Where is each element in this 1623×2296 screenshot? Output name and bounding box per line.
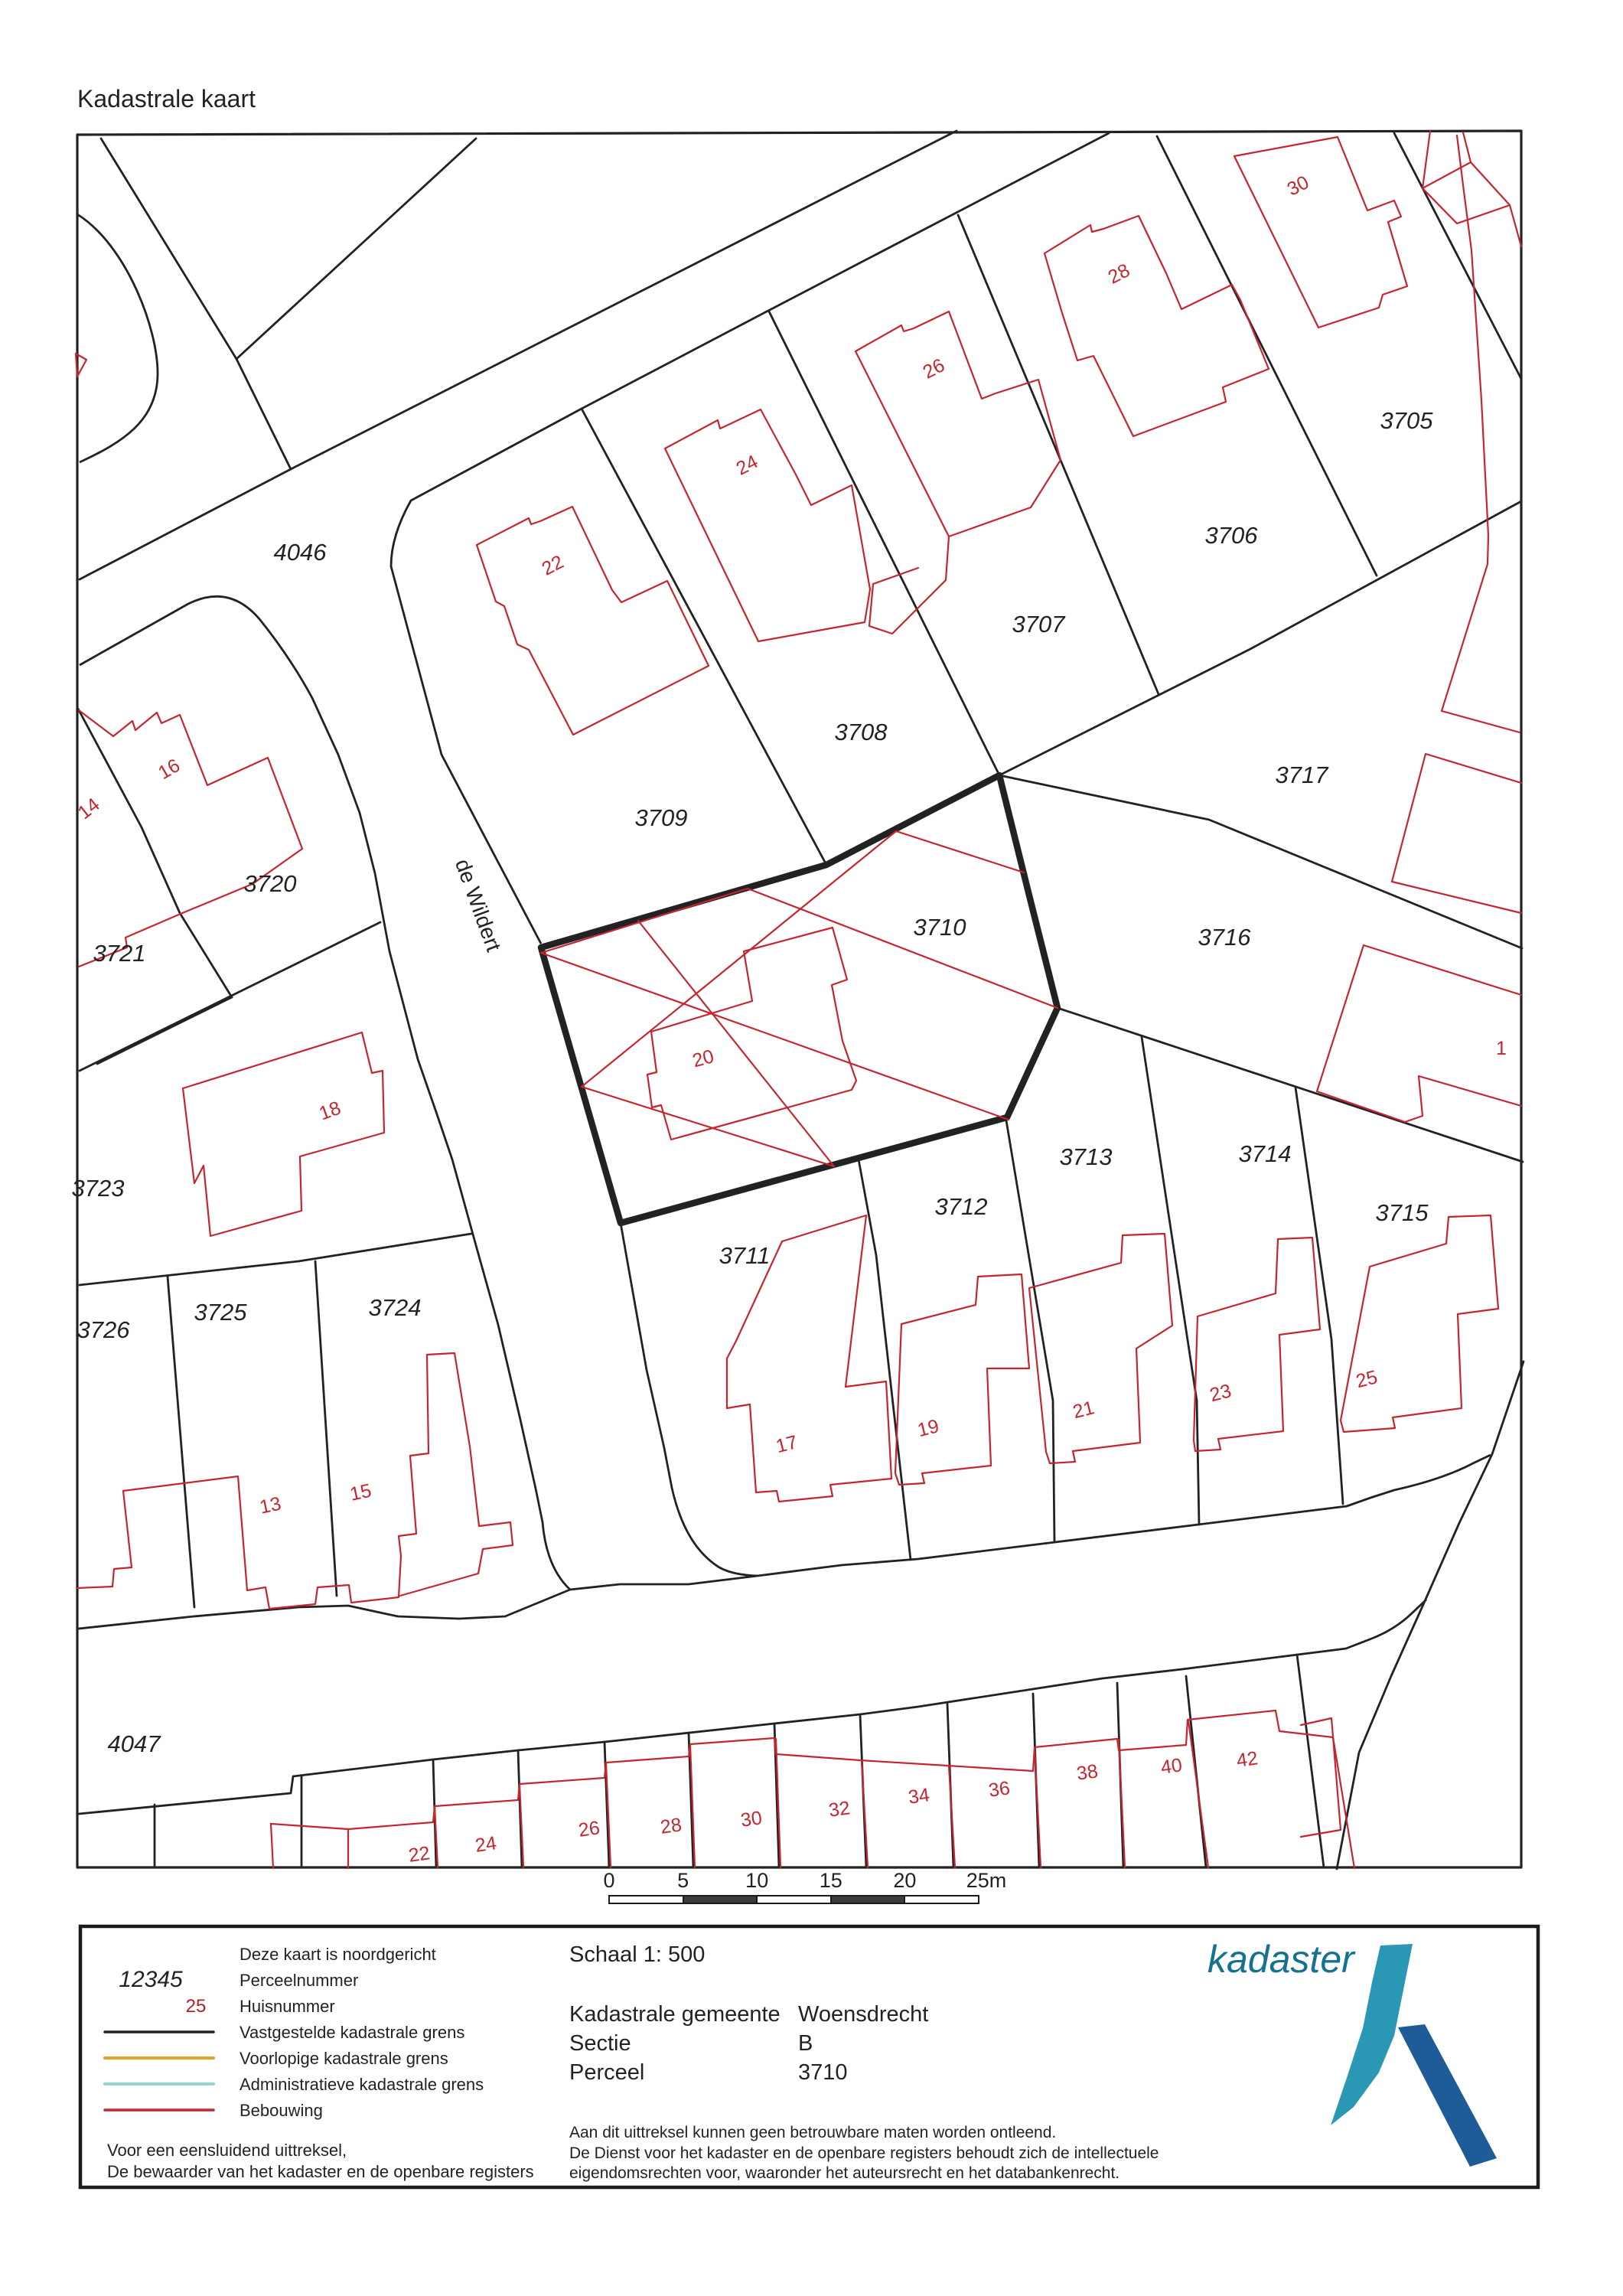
svg-text:3713: 3713: [1060, 1143, 1113, 1170]
svg-text:42: 42: [1235, 1747, 1259, 1772]
svg-text:Bebouwing: Bebouwing: [240, 2101, 323, 2120]
svg-text:4046: 4046: [274, 539, 328, 566]
svg-text:3716: 3716: [1198, 924, 1252, 951]
svg-text:18: 18: [316, 1097, 344, 1125]
svg-text:3711: 3711: [719, 1242, 771, 1269]
svg-text:13: 13: [258, 1493, 283, 1518]
svg-text:25: 25: [186, 1996, 207, 2017]
svg-text:3705: 3705: [1380, 407, 1434, 434]
svg-text:3709: 3709: [635, 804, 688, 831]
svg-text:Voorlopige kadastrale grens: Voorlopige kadastrale grens: [240, 2049, 448, 2068]
svg-text:28: 28: [1105, 259, 1133, 289]
svg-text:Huisnummer: Huisnummer: [240, 1997, 335, 2016]
svg-text:3708: 3708: [835, 719, 888, 745]
svg-text:16: 16: [155, 755, 184, 784]
svg-text:10: 10: [745, 1869, 768, 1892]
svg-text:3715: 3715: [1376, 1199, 1429, 1226]
svg-text:Voor een eensluidend uittrekse: Voor een eensluidend uittreksel,: [107, 2141, 347, 2160]
svg-text:30: 30: [739, 1807, 763, 1831]
svg-text:22: 22: [407, 1842, 431, 1867]
svg-text:De bewaarder van het kadaster: De bewaarder van het kadaster en de open…: [107, 2162, 534, 2181]
svg-text:3707: 3707: [1012, 611, 1067, 638]
svg-text:23: 23: [1207, 1380, 1234, 1406]
svg-text:3723: 3723: [72, 1175, 125, 1202]
svg-text:26: 26: [577, 1817, 601, 1841]
svg-text:38: 38: [1075, 1760, 1099, 1785]
svg-text:22: 22: [539, 551, 567, 580]
svg-text:3721: 3721: [93, 940, 146, 967]
svg-text:17: 17: [774, 1431, 800, 1457]
svg-text:3720: 3720: [244, 870, 297, 897]
svg-text:kadaster: kadaster: [1207, 1938, 1356, 1981]
svg-text:B: B: [798, 2031, 813, 2056]
svg-text:32: 32: [827, 1797, 851, 1821]
svg-text:Woensdrecht: Woensdrecht: [798, 2002, 928, 2027]
svg-text:Perceel: Perceel: [569, 2060, 644, 2085]
svg-text:3710: 3710: [798, 2060, 848, 2085]
svg-text:34: 34: [907, 1784, 931, 1808]
svg-text:15: 15: [820, 1869, 842, 1892]
svg-text:de Wildert: de Wildert: [451, 856, 506, 954]
svg-text:12345: 12345: [119, 1967, 183, 1992]
svg-text:4047: 4047: [108, 1730, 162, 1757]
svg-text:26: 26: [920, 354, 948, 383]
svg-text:Vastgestelde kadastrale grens: Vastgestelde kadastrale grens: [240, 2023, 464, 2042]
svg-text:Kadastrale kaart: Kadastrale kaart: [77, 85, 256, 113]
svg-text:3710: 3710: [914, 914, 966, 941]
svg-text:Schaal 1: 500: Schaal 1: 500: [569, 1942, 705, 1967]
svg-text:3714: 3714: [1239, 1140, 1292, 1167]
svg-text:3726: 3726: [77, 1316, 131, 1343]
svg-text:3712: 3712: [935, 1193, 988, 1220]
svg-text:Kadastrale gemeente: Kadastrale gemeente: [569, 2002, 781, 2027]
svg-text:3706: 3706: [1205, 522, 1259, 549]
svg-text:eigendomsrechten voor, waarond: eigendomsrechten voor, waaronder het aut…: [569, 2164, 1119, 2182]
svg-text:Aan dit uittreksel kunnen geen: Aan dit uittreksel kunnen geen betrouwba…: [569, 2124, 1056, 2141]
svg-text:Perceelnummer: Perceelnummer: [240, 1971, 358, 1990]
svg-text:30: 30: [1284, 171, 1312, 201]
svg-text:Sectie: Sectie: [569, 2031, 631, 2056]
svg-text:24: 24: [474, 1832, 498, 1857]
svg-text:36: 36: [987, 1777, 1011, 1802]
svg-text:1: 1: [1496, 1038, 1507, 1059]
svg-text:28: 28: [659, 1814, 683, 1838]
svg-text:19: 19: [915, 1415, 941, 1441]
svg-text:0: 0: [603, 1869, 614, 1892]
svg-text:3717: 3717: [1276, 762, 1330, 788]
svg-text:21: 21: [1071, 1397, 1097, 1423]
svg-text:20: 20: [893, 1869, 916, 1892]
svg-text:3724: 3724: [369, 1294, 422, 1321]
svg-text:De Dienst voor het kadaster en: De Dienst voor het kadaster en de openba…: [569, 2144, 1159, 2162]
svg-text:24: 24: [733, 451, 762, 480]
svg-text:25: 25: [1354, 1366, 1380, 1392]
svg-text:Administratieve kadastrale gre: Administratieve kadastrale grens: [240, 2075, 484, 2094]
svg-text:40: 40: [1159, 1754, 1183, 1779]
svg-text:15: 15: [348, 1480, 373, 1505]
svg-text:25m: 25m: [966, 1869, 1007, 1892]
svg-text:20: 20: [690, 1045, 716, 1071]
svg-text:Deze kaart is noordgericht: Deze kaart is noordgericht: [240, 1945, 436, 1964]
svg-text:3725: 3725: [194, 1299, 248, 1326]
svg-text:5: 5: [677, 1869, 689, 1892]
